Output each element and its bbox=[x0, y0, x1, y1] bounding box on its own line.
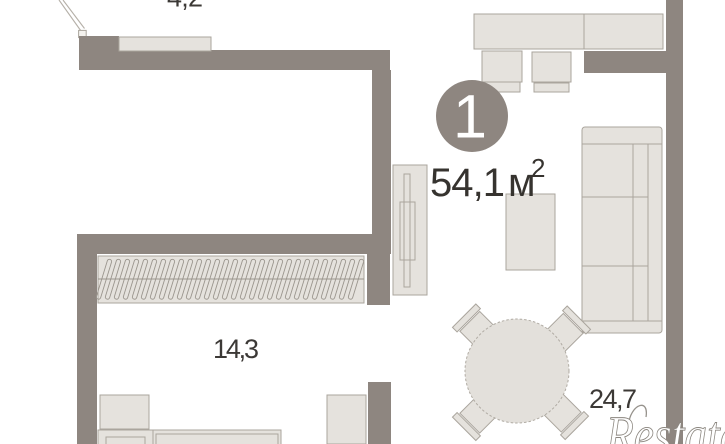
svg-text:2: 2 bbox=[531, 153, 545, 183]
svg-text:Restate: Restate bbox=[605, 405, 725, 444]
svg-text:1: 1 bbox=[453, 83, 487, 151]
svg-text:54,1: 54,1 bbox=[430, 161, 505, 205]
svg-text:4,2: 4,2 bbox=[167, 0, 203, 13]
svg-text:14,3: 14,3 bbox=[213, 334, 259, 364]
